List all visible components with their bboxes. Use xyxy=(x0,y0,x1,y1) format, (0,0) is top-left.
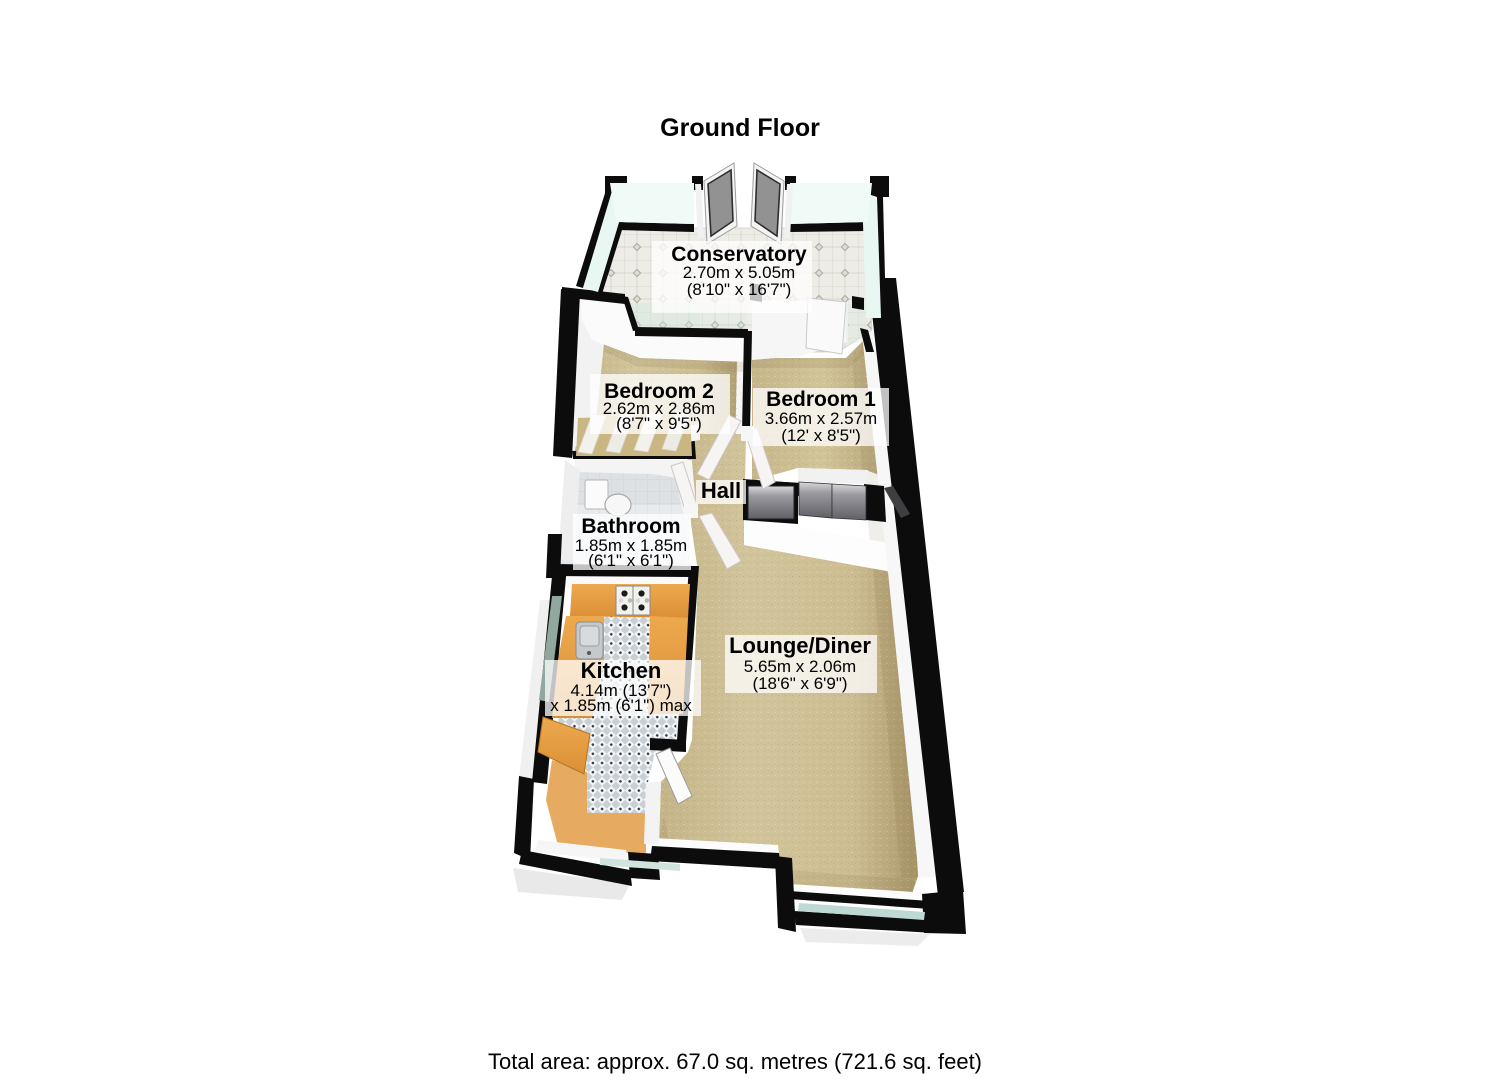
svg-text:Kitchen: Kitchen xyxy=(581,658,662,683)
svg-text:(8'7" x 9'5"): (8'7" x 9'5") xyxy=(616,414,702,433)
svg-text:Bedroom 1: Bedroom 1 xyxy=(766,388,876,411)
svg-text:Ground Floor: Ground Floor xyxy=(660,114,820,142)
svg-text:Lounge/Diner: Lounge/Diner xyxy=(729,633,871,658)
svg-text:(18'6" x 6'9"): (18'6" x 6'9") xyxy=(752,674,847,693)
svg-text:(8'10" x 16'7"): (8'10" x 16'7") xyxy=(687,280,792,299)
svg-text:(12' x 8'5"): (12' x 8'5") xyxy=(781,426,861,445)
svg-text:(6'1" x 6'1"): (6'1" x 6'1") xyxy=(588,551,674,570)
svg-text:x 1.85m (6'1") max: x 1.85m (6'1") max xyxy=(550,696,692,715)
svg-text:Total area: approx. 67.0 sq. m: Total area: approx. 67.0 sq. metres (721… xyxy=(488,1049,982,1074)
svg-text:Hall: Hall xyxy=(701,478,741,503)
svg-text:Bathroom: Bathroom xyxy=(581,515,680,538)
